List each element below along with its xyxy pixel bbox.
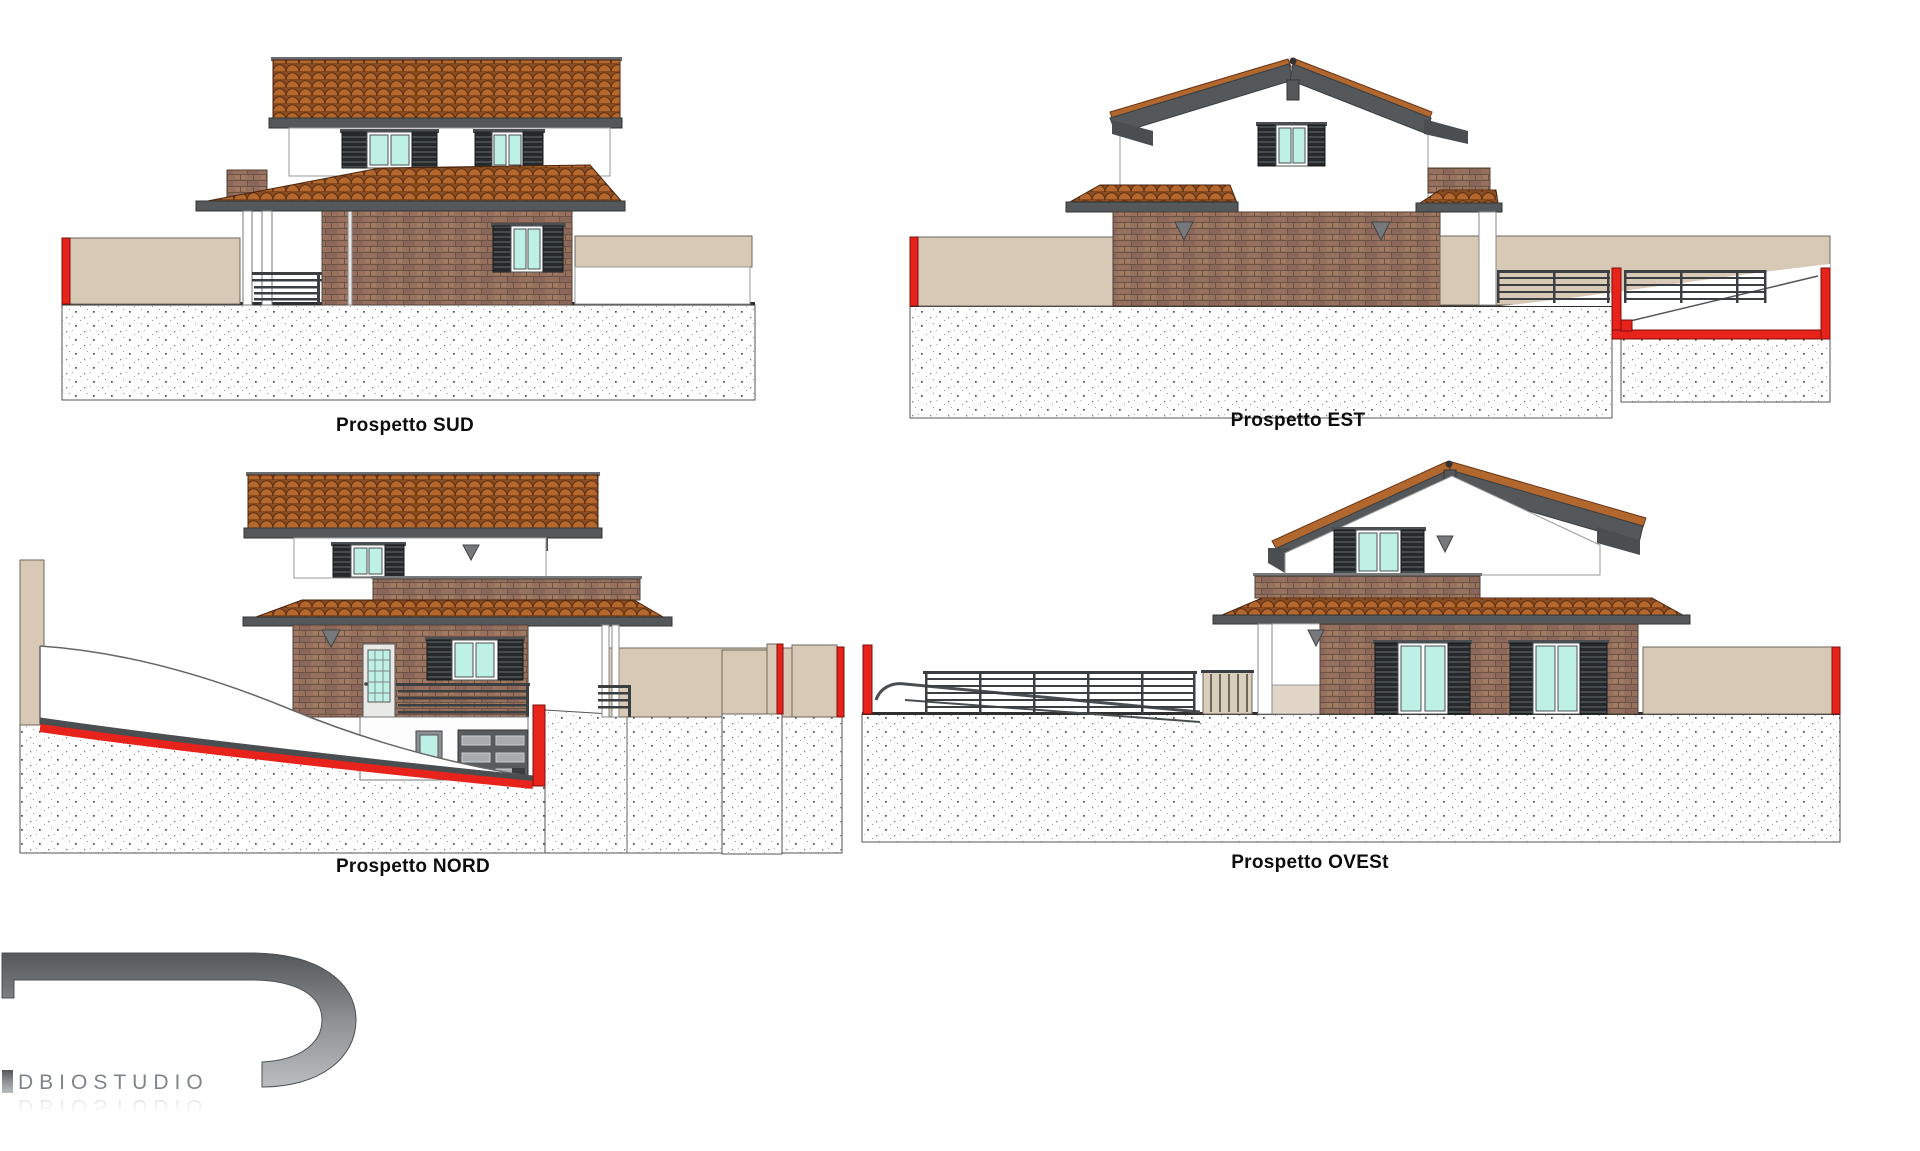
section-cut-red-ovest-right — [1832, 647, 1840, 714]
window-gable-est — [1256, 122, 1327, 166]
ground-est-main — [910, 306, 1612, 418]
boundary-wall-right-step-nord — [792, 645, 837, 717]
ridge-finial — [1290, 58, 1297, 65]
wall-below-right-sud — [575, 267, 750, 304]
ground-est-right — [1621, 338, 1830, 402]
section-cut-red-nord-right — [837, 647, 844, 717]
porch-column — [1479, 212, 1496, 305]
section-cut-red-post — [863, 645, 872, 714]
boundary-wall-left-sud — [69, 238, 240, 304]
channel-interior-est — [1621, 304, 1821, 332]
gate-ovest — [1201, 670, 1254, 714]
downpipe-sud — [348, 211, 352, 305]
ground-ovest-left — [722, 714, 782, 854]
window-lower-nord — [425, 637, 525, 680]
window-upper-ovest — [1332, 527, 1426, 574]
small-fascia-est — [1066, 202, 1238, 212]
elevation-sud-drawing — [62, 57, 755, 400]
upper-fascia-sud — [269, 118, 622, 128]
upper-roof-nord — [248, 475, 598, 530]
door-nord — [363, 644, 395, 717]
elevation-ovest-drawing — [722, 461, 1840, 855]
porch-column — [1258, 624, 1272, 714]
section-cut-red-ovest-left — [777, 644, 783, 714]
drawing-canvas: Prospetto SUD Prospetto EST Prospetto NO… — [0, 0, 1920, 1151]
section-cut-red-est-left — [910, 237, 918, 306]
window-upper-left-sud — [340, 129, 439, 168]
parapet-brick-nord — [373, 579, 640, 600]
boundary-wall-right-ovest — [1643, 647, 1833, 714]
elevation-est-drawing — [910, 58, 1830, 419]
ridge-pendant — [1287, 80, 1299, 100]
label-prospetto-ovest: Prospetto OVESt — [1160, 852, 1460, 874]
eave-soffit — [1424, 119, 1468, 144]
porch-column — [612, 625, 619, 717]
logo-text-reflection: DBIOSTUDIO — [18, 1094, 209, 1118]
railing-ovest — [923, 671, 1197, 714]
section-cut-red-nord — [533, 705, 545, 786]
ground-ovest-main — [862, 714, 1840, 842]
boundary-wall-right-sud — [575, 236, 752, 267]
logo-text: DBIOSTUDIO — [18, 1071, 209, 1095]
ground-nord-right — [545, 710, 842, 853]
window-upper-right-sud — [473, 129, 545, 168]
upper-fascia-nord — [244, 528, 602, 538]
ridge-finial — [1446, 461, 1453, 468]
logo-d-stub — [2, 1070, 13, 1093]
label-prospetto-sud: Prospetto SUD — [255, 415, 555, 437]
lower-fascia-sud — [196, 201, 625, 211]
upper-roof-sud — [273, 60, 620, 120]
label-prospetto-est: Prospetto EST — [1148, 410, 1448, 432]
brick-pillar-est — [1428, 168, 1490, 193]
pillar-fascia — [1416, 203, 1502, 212]
french-window-1-ovest — [1373, 640, 1472, 714]
porch-column — [602, 625, 609, 717]
logo-d-shape — [2, 953, 356, 1087]
window-lower-sud — [491, 223, 565, 272]
boundary-wall-left-ovest — [722, 650, 768, 714]
parapet-brick-ovest — [1255, 576, 1480, 598]
ground-sud — [62, 305, 755, 400]
hip-fascia-ovest — [1213, 615, 1690, 624]
window-upper-nord — [331, 542, 406, 577]
french-window-2-ovest — [1508, 640, 1609, 714]
small-roof-est — [1068, 185, 1237, 203]
boundary-wall-left-est — [917, 237, 1113, 306]
elevation-nord-drawing — [20, 472, 844, 853]
brick-wall-est — [1113, 212, 1440, 306]
porch-low-wall-ovest — [1272, 685, 1320, 714]
porch-column — [262, 211, 272, 305]
label-prospetto-nord: Prospetto NORD — [263, 856, 563, 878]
porch-column — [243, 211, 252, 305]
elevations-sheet — [0, 0, 1920, 1151]
section-cut-red-sud — [62, 238, 70, 304]
